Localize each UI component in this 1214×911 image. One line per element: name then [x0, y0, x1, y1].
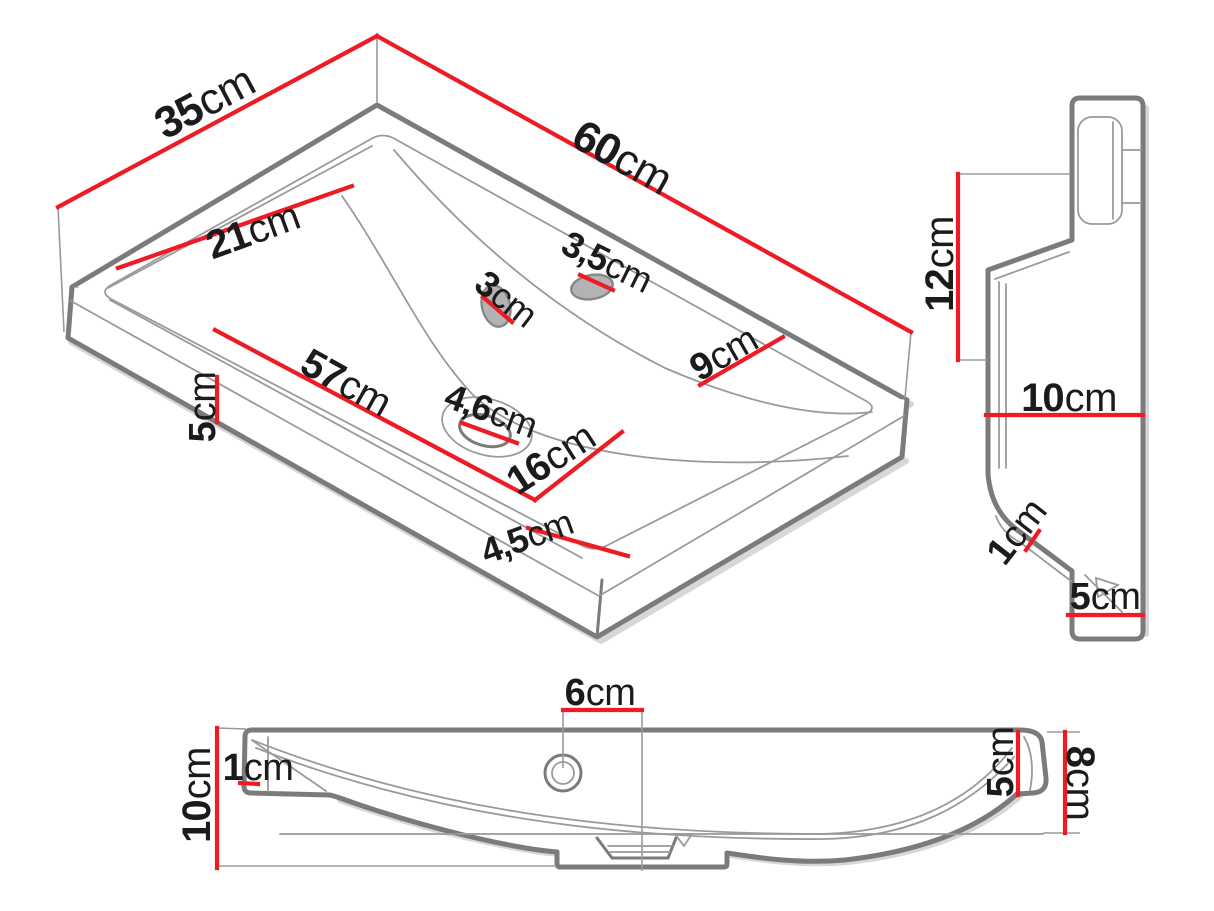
dim-label-side-10cm: 10cm	[1021, 378, 1117, 418]
dim-label-front-6cm: 6cm	[565, 674, 636, 712]
dim-value: 5	[1070, 576, 1090, 618]
dim-unit: cm	[175, 747, 219, 799]
side-view-group	[958, 98, 1146, 639]
dim-label-front-10cm: 10cm	[177, 747, 217, 843]
dim-label-side-5cm: 5cm	[1070, 578, 1141, 616]
dim-value: 5	[182, 422, 224, 442]
dim-value: 6	[565, 672, 585, 714]
dim-unit: cm	[918, 216, 962, 268]
front-section-group	[217, 710, 1080, 871]
washbasin-technical-drawing: 35cm 60cm 21cm 3cm 3,5cm 9cm 57cm 5cm 4,…	[0, 0, 1214, 911]
dim-unit: cm	[1058, 768, 1102, 820]
dim-label-iso-5cm: 5cm	[184, 372, 222, 443]
dim-label-front-5cm: 5cm	[982, 727, 1020, 798]
dim-value: 8	[1058, 746, 1102, 767]
dim-unit: cm	[182, 372, 224, 422]
dim-value: 10	[175, 800, 219, 843]
dim-unit: cm	[244, 747, 294, 789]
dim-label-front-1cm: 1cm	[223, 749, 294, 787]
dim-value: 10	[1021, 376, 1064, 420]
dim-unit: cm	[1065, 376, 1117, 420]
dim-value: 1	[223, 747, 243, 789]
dim-unit: cm	[980, 727, 1022, 777]
dim-unit: cm	[586, 672, 636, 714]
dim-unit: cm	[1091, 576, 1141, 618]
dim-value: 5	[980, 777, 1022, 797]
dim-label-side-12cm: 12cm	[920, 216, 960, 312]
dim-label-front-8cm: 8cm	[1060, 746, 1100, 821]
dim-value: 12	[918, 269, 962, 312]
